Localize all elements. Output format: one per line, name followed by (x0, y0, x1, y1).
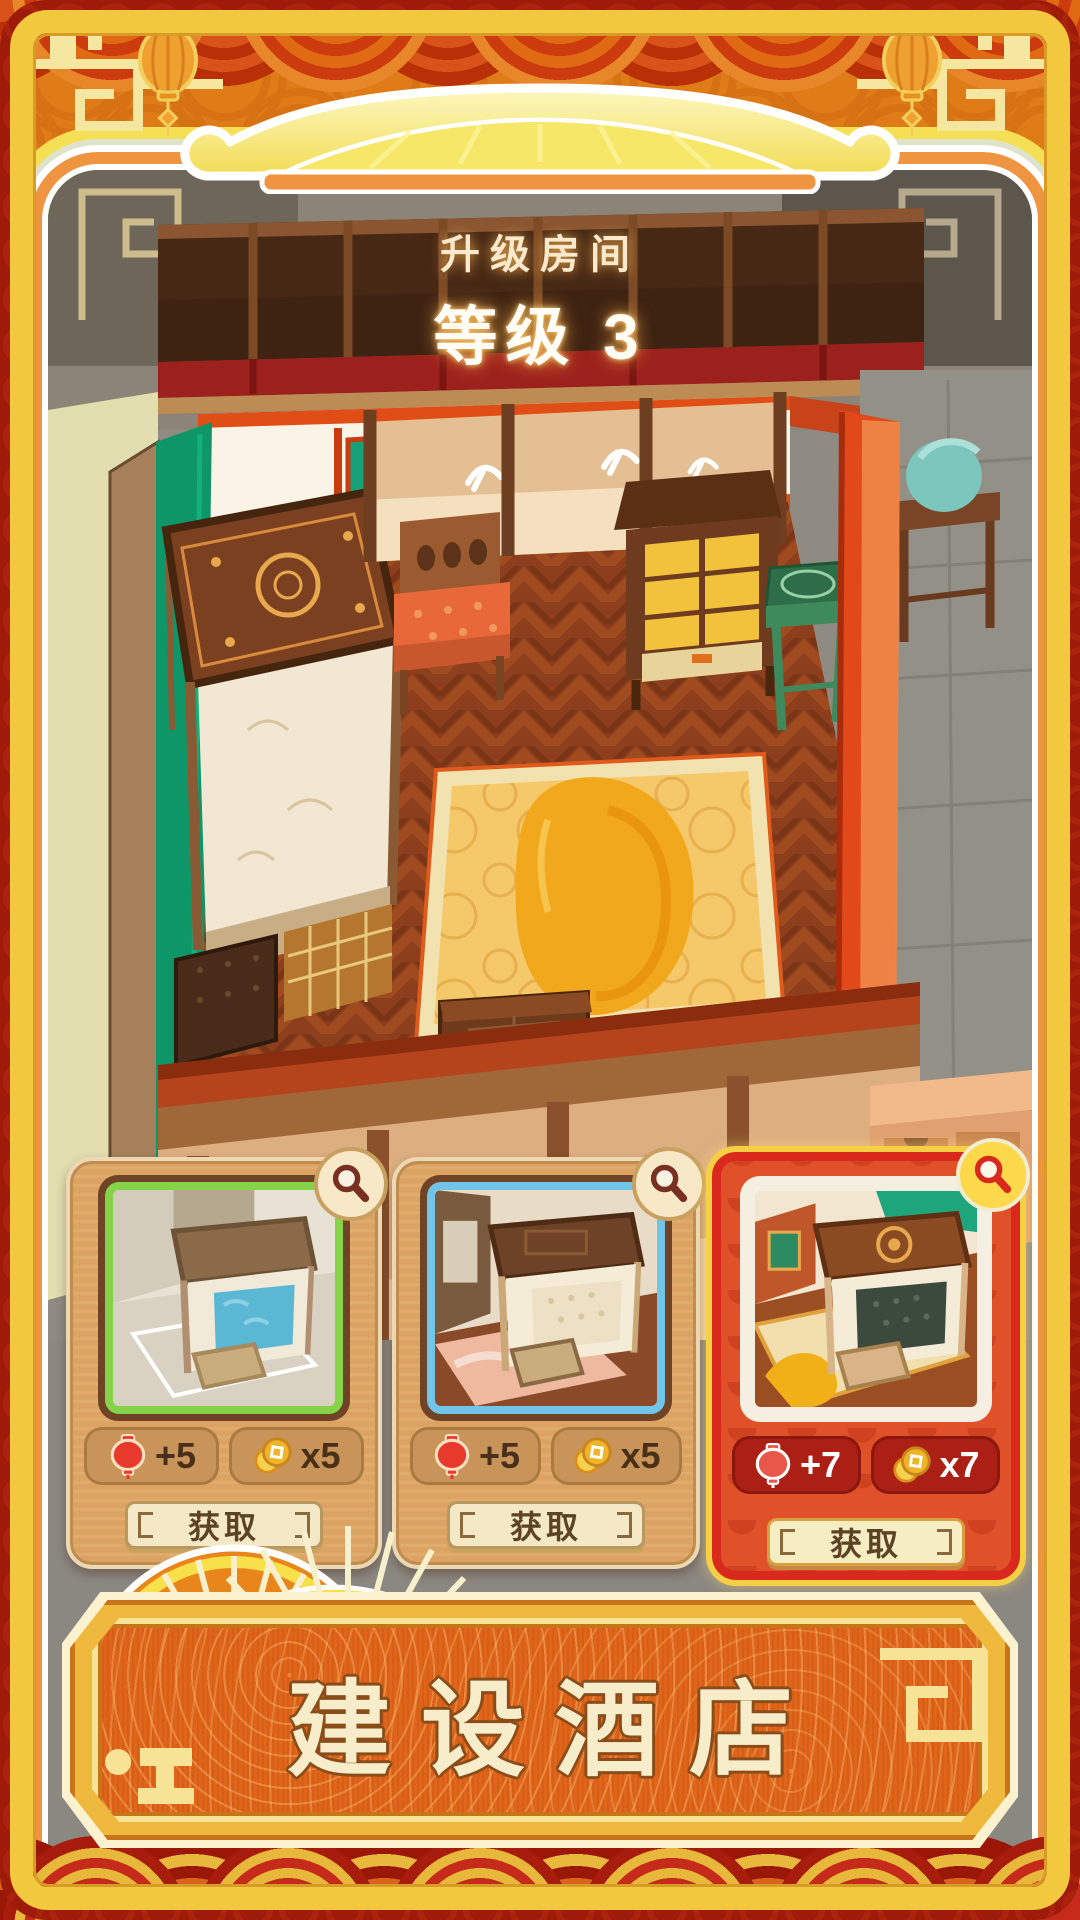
reward-row: +7 x7 (732, 1436, 1000, 1494)
build-hotel-banner[interactable]: 建设酒店 (62, 1592, 1018, 1848)
room-preview[interactable] (98, 1175, 350, 1421)
room-thumbnail-plain (113, 1190, 335, 1406)
bracket-ornament (138, 1512, 153, 1538)
banner-ornament-right (872, 1640, 992, 1750)
bracket-ornament (295, 1512, 310, 1538)
magnifier-icon (329, 1162, 373, 1206)
lantern-icon (107, 1433, 149, 1479)
room-thumbnail-warm (435, 1190, 657, 1406)
lantern-icon (752, 1442, 794, 1488)
magnifier-badge[interactable] (314, 1147, 388, 1221)
bracket-ornament (460, 1512, 475, 1538)
lantern-reward-value: +5 (479, 1435, 520, 1477)
bracket-ornament (780, 1529, 795, 1555)
room-preview[interactable] (420, 1175, 672, 1421)
room-card-2[interactable]: +5 x5 获取 (392, 1157, 700, 1569)
coin-reward-value: x7 (939, 1444, 979, 1486)
room-preview[interactable] (740, 1176, 992, 1422)
room-level: 等级 3 (0, 286, 1080, 378)
coin-reward-pill: x7 (871, 1436, 1000, 1494)
page-title: 升级房间 (0, 222, 1080, 280)
claim-button[interactable]: 获取 (125, 1501, 323, 1549)
bracket-ornament (617, 1512, 632, 1538)
reward-row: +5 x5 (84, 1427, 364, 1485)
banner-ornament-left (96, 1704, 216, 1814)
claim-button[interactable]: 获取 (767, 1518, 965, 1566)
coin-reward-value: x5 (300, 1435, 340, 1477)
roof-eave (170, 76, 910, 194)
coin-reward-value: x5 (620, 1435, 660, 1477)
lantern-reward-pill: +5 (84, 1427, 219, 1485)
lantern-reward-pill: +7 (732, 1436, 861, 1494)
coin-icon (891, 1442, 933, 1488)
coin-reward-pill: x5 (229, 1427, 364, 1485)
magnifier-icon (647, 1162, 691, 1206)
coin-icon (572, 1433, 614, 1479)
magnifier-badge[interactable] (632, 1147, 706, 1221)
magnifier-icon (971, 1153, 1015, 1197)
game-screen: 升级房间 等级 3 (0, 0, 1080, 1920)
room-card-3[interactable]: +7 x7 获取 (706, 1146, 1026, 1586)
room-card-1[interactable]: +5 x5 获取 (66, 1157, 382, 1569)
lantern-icon (431, 1433, 473, 1479)
celadon-vase (906, 440, 982, 512)
claim-button[interactable]: 获取 (447, 1501, 645, 1549)
lantern-reward-pill: +5 (410, 1427, 541, 1485)
room-thumbnail-deluxe (755, 1191, 977, 1407)
bracket-ornament (937, 1529, 952, 1555)
magnifier-badge[interactable] (956, 1138, 1030, 1212)
coin-icon (252, 1433, 294, 1479)
coin-reward-pill: x5 (551, 1427, 682, 1485)
reward-row: +5 x5 (410, 1427, 682, 1485)
lantern-reward-value: +7 (800, 1444, 841, 1486)
lantern-reward-value: +5 (155, 1435, 196, 1477)
